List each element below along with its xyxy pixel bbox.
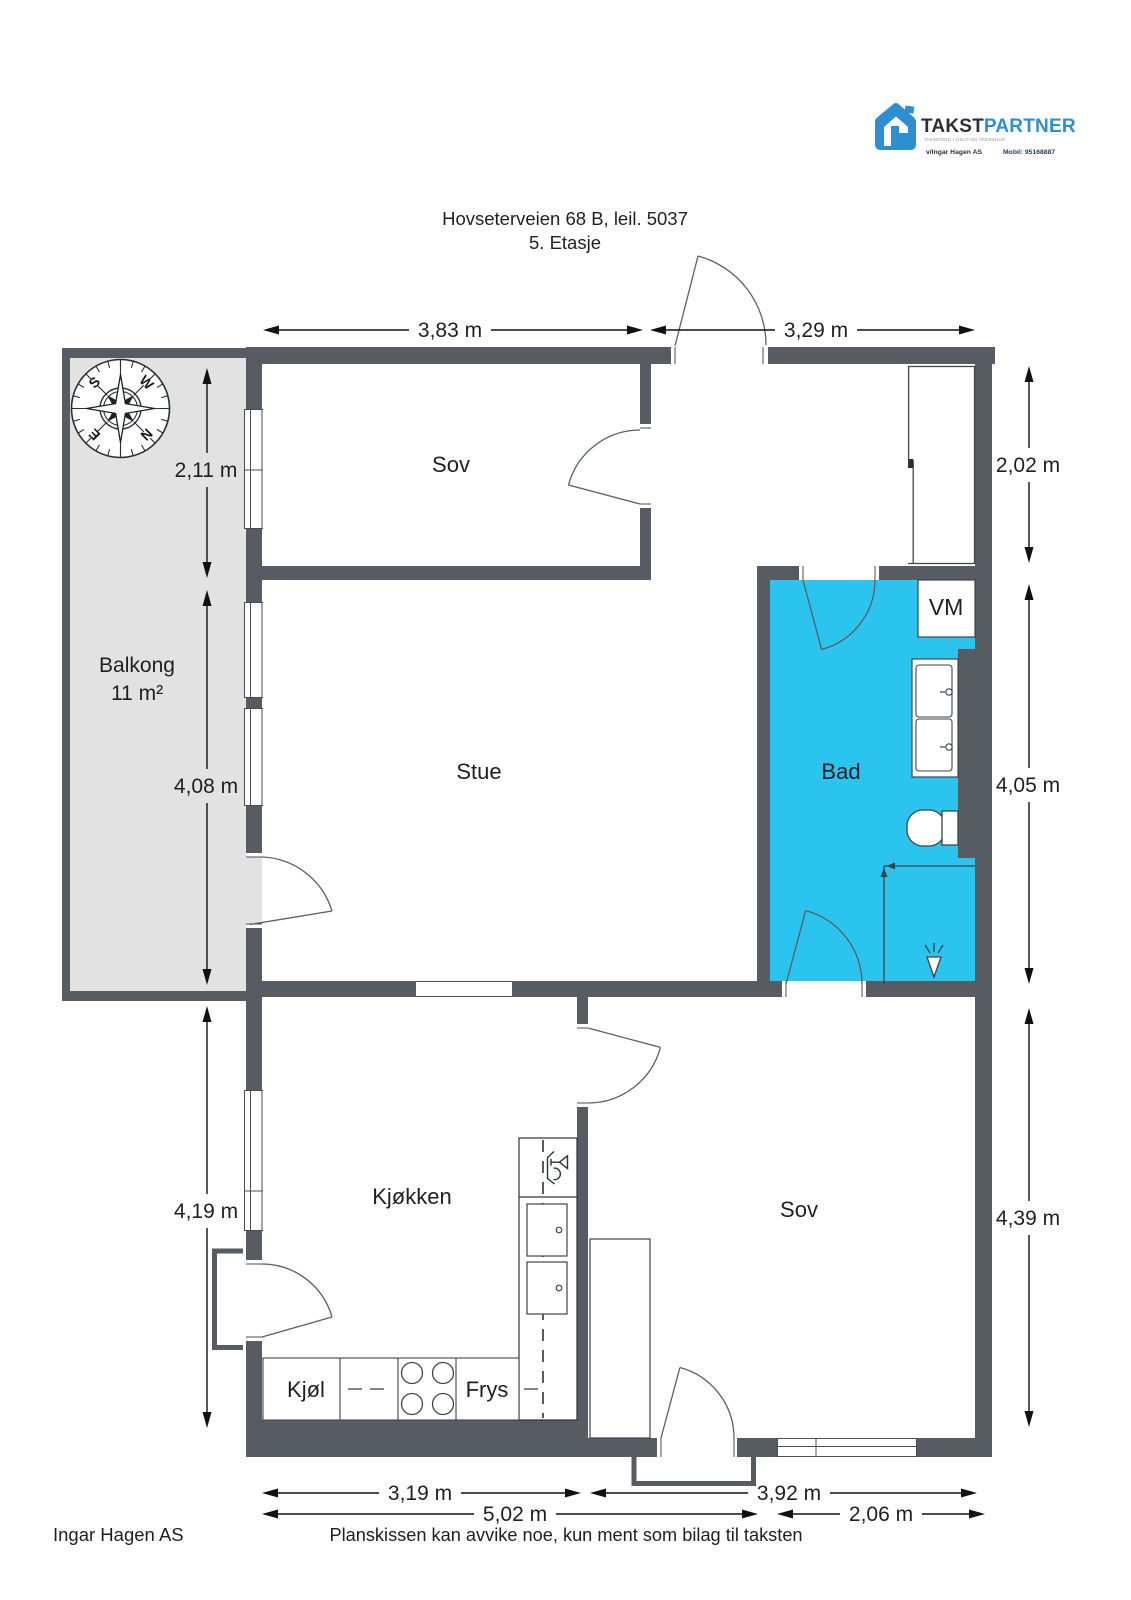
svg-text:5. Etasje: 5. Etasje bbox=[529, 232, 601, 253]
svg-text:4,19 m: 4,19 m bbox=[174, 1200, 238, 1223]
svg-text:VM: VM bbox=[929, 594, 964, 620]
svg-text:11 m²: 11 m² bbox=[111, 682, 163, 705]
svg-text:Kjøl: Kjøl bbox=[287, 1377, 325, 1402]
svg-text:Stue: Stue bbox=[456, 759, 501, 784]
svg-text:v/Ingar Hagen AS: v/Ingar Hagen AS bbox=[926, 149, 982, 156]
svg-text:Sov: Sov bbox=[432, 452, 470, 477]
svg-text:2,02 m: 2,02 m bbox=[996, 454, 1060, 477]
svg-text:Mobil: 95168887: Mobil: 95168887 bbox=[1003, 149, 1055, 156]
svg-text:Bad: Bad bbox=[821, 759, 860, 784]
svg-text:4,05 m: 4,05 m bbox=[996, 774, 1060, 797]
svg-text:4,39 m: 4,39 m bbox=[996, 1207, 1060, 1230]
svg-text:2,11 m: 2,11 m bbox=[175, 459, 238, 482]
svg-text:Hovseterveien 68 B, leil. 5037: Hovseterveien 68 B, leil. 5037 bbox=[442, 208, 688, 229]
svg-text:Ingar Hagen AS: Ingar Hagen AS bbox=[53, 1524, 184, 1545]
svg-text:TAKSERING I OSLO OG AKERSHUS: TAKSERING I OSLO OG AKERSHUS bbox=[924, 137, 1005, 142]
svg-text:Balkong: Balkong bbox=[99, 654, 175, 677]
svg-text:4,08 m: 4,08 m bbox=[174, 775, 238, 798]
svg-text:2,06 m: 2,06 m bbox=[849, 1503, 913, 1526]
svg-text:Frys: Frys bbox=[466, 1377, 509, 1402]
svg-text:TAKSTPARTNER: TAKSTPARTNER bbox=[921, 116, 1076, 137]
svg-text:3,19 m: 3,19 m bbox=[388, 1482, 452, 1505]
svg-text:3,92 m: 3,92 m bbox=[757, 1482, 821, 1505]
svg-text:Planskissen kan avvike noe, ku: Planskissen kan avvike noe, kun ment som… bbox=[329, 1525, 802, 1545]
svg-text:Kjøkken: Kjøkken bbox=[372, 1184, 451, 1209]
svg-text:3,83 m: 3,83 m bbox=[418, 319, 482, 342]
svg-text:Sov: Sov bbox=[780, 1197, 818, 1222]
svg-text:3,29 m: 3,29 m bbox=[784, 319, 848, 342]
svg-text:5,02 m: 5,02 m bbox=[483, 1503, 547, 1526]
